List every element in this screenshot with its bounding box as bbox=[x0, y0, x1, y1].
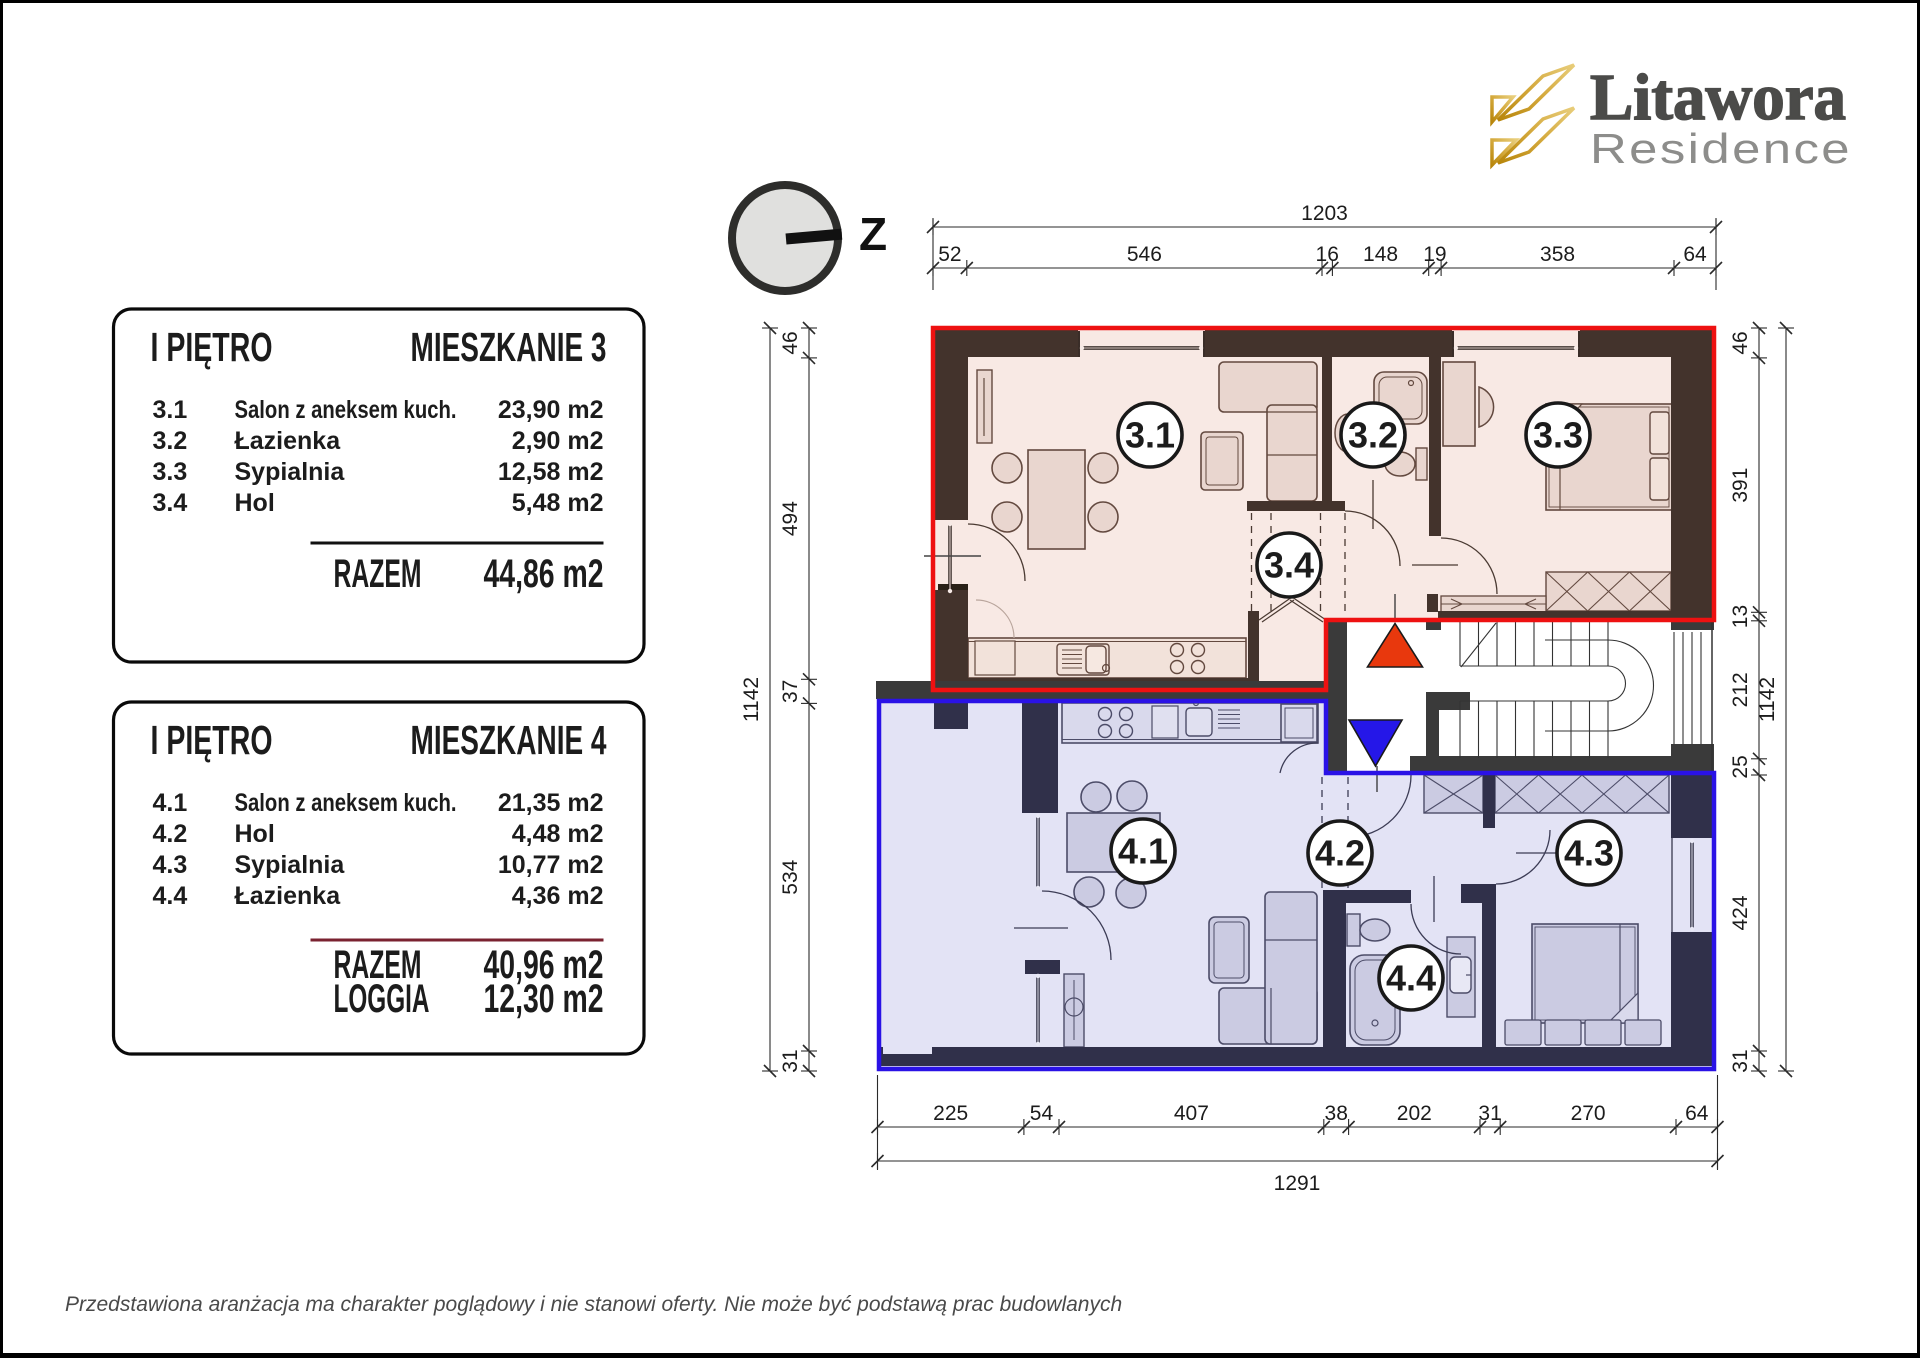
svg-text:Z: Z bbox=[859, 208, 887, 260]
svg-text:MIESZKANIE 4: MIESZKANIE 4 bbox=[411, 717, 607, 763]
svg-text:1203: 1203 bbox=[1301, 202, 1348, 225]
svg-text:Hol: Hol bbox=[235, 820, 275, 848]
svg-text:424: 424 bbox=[1729, 895, 1752, 930]
svg-text:546: 546 bbox=[1127, 243, 1162, 266]
svg-text:4.2: 4.2 bbox=[153, 820, 188, 848]
svg-text:Residence: Residence bbox=[1590, 125, 1852, 172]
svg-text:4,36 m2: 4,36 m2 bbox=[512, 882, 604, 910]
svg-text:1291: 1291 bbox=[1274, 1172, 1321, 1195]
svg-text:3.1: 3.1 bbox=[1125, 415, 1175, 456]
svg-text:Łazienka: Łazienka bbox=[235, 427, 342, 455]
svg-text:3.1: 3.1 bbox=[153, 396, 188, 424]
svg-text:3.2: 3.2 bbox=[153, 427, 188, 455]
svg-text:1142: 1142 bbox=[740, 677, 763, 722]
svg-text:4.4: 4.4 bbox=[153, 882, 188, 910]
svg-text:64: 64 bbox=[1685, 1102, 1709, 1125]
svg-text:37: 37 bbox=[779, 680, 802, 703]
svg-text:407: 407 bbox=[1174, 1102, 1209, 1125]
svg-text:31: 31 bbox=[779, 1049, 802, 1072]
svg-text:391: 391 bbox=[1729, 468, 1752, 503]
svg-text:Sypialnia: Sypialnia bbox=[235, 851, 346, 879]
svg-text:44,86 m2: 44,86 m2 bbox=[484, 552, 604, 596]
svg-text:534: 534 bbox=[779, 859, 802, 894]
svg-text:212: 212 bbox=[1729, 672, 1752, 707]
svg-text:46: 46 bbox=[1729, 331, 1752, 354]
svg-text:10,77 m2: 10,77 m2 bbox=[498, 851, 604, 879]
svg-text:52: 52 bbox=[938, 243, 961, 266]
svg-text:Przedstawiona aranżacja ma cha: Przedstawiona aranżacja ma charakter pog… bbox=[65, 1293, 1122, 1316]
svg-text:4,48 m2: 4,48 m2 bbox=[512, 820, 604, 848]
svg-text:5,48 m2: 5,48 m2 bbox=[512, 489, 604, 517]
svg-text:4.4: 4.4 bbox=[1386, 958, 1436, 999]
svg-text:38: 38 bbox=[1325, 1102, 1348, 1125]
svg-text:Salon z aneksem kuch.: Salon z aneksem kuch. bbox=[235, 789, 457, 817]
svg-text:1142: 1142 bbox=[1756, 677, 1779, 722]
svg-text:4.1: 4.1 bbox=[153, 789, 188, 817]
svg-text:13: 13 bbox=[1729, 605, 1752, 628]
svg-text:MIESZKANIE 3: MIESZKANIE 3 bbox=[411, 324, 607, 370]
svg-text:270: 270 bbox=[1571, 1102, 1606, 1125]
svg-text:358: 358 bbox=[1540, 243, 1575, 266]
svg-text:4.3: 4.3 bbox=[153, 851, 188, 879]
svg-text:3.4: 3.4 bbox=[1264, 545, 1314, 586]
svg-text:LOGGIA: LOGGIA bbox=[334, 977, 430, 1021]
svg-text:3.2: 3.2 bbox=[1348, 415, 1398, 456]
svg-text:46: 46 bbox=[779, 331, 802, 354]
svg-text:202: 202 bbox=[1397, 1102, 1432, 1125]
svg-text:25: 25 bbox=[1729, 755, 1752, 778]
svg-text:21,35 m2: 21,35 m2 bbox=[498, 789, 604, 817]
svg-text:I PIĘTRO: I PIĘTRO bbox=[151, 717, 273, 763]
svg-text:4.2: 4.2 bbox=[1315, 833, 1365, 874]
svg-text:23,90 m2: 23,90 m2 bbox=[498, 396, 604, 424]
svg-text:Salon z aneksem kuch.: Salon z aneksem kuch. bbox=[235, 396, 457, 424]
svg-text:31: 31 bbox=[1729, 1049, 1752, 1072]
svg-text:64: 64 bbox=[1683, 243, 1707, 266]
svg-text:4.1: 4.1 bbox=[1118, 831, 1168, 872]
svg-text:I PIĘTRO: I PIĘTRO bbox=[151, 324, 273, 370]
svg-text:Łazienka: Łazienka bbox=[235, 882, 342, 910]
svg-text:2,90 m2: 2,90 m2 bbox=[512, 427, 604, 455]
svg-text:12,30 m2: 12,30 m2 bbox=[484, 977, 604, 1021]
svg-text:54: 54 bbox=[1030, 1102, 1054, 1125]
svg-text:16: 16 bbox=[1316, 243, 1339, 266]
svg-text:3.4: 3.4 bbox=[153, 489, 188, 517]
svg-text:12,58 m2: 12,58 m2 bbox=[498, 458, 604, 486]
svg-text:Litawora: Litawora bbox=[1590, 61, 1846, 134]
svg-text:3.3: 3.3 bbox=[153, 458, 188, 486]
svg-text:Sypialnia: Sypialnia bbox=[235, 458, 346, 486]
svg-text:3.3: 3.3 bbox=[1533, 415, 1583, 456]
svg-text:225: 225 bbox=[933, 1102, 968, 1125]
svg-text:RAZEM: RAZEM bbox=[334, 552, 422, 596]
svg-text:Hol: Hol bbox=[235, 489, 275, 517]
svg-text:31: 31 bbox=[1478, 1102, 1501, 1125]
svg-text:148: 148 bbox=[1363, 243, 1398, 266]
svg-text:494: 494 bbox=[779, 501, 802, 536]
svg-text:4.3: 4.3 bbox=[1564, 833, 1614, 874]
svg-text:19: 19 bbox=[1423, 243, 1446, 266]
